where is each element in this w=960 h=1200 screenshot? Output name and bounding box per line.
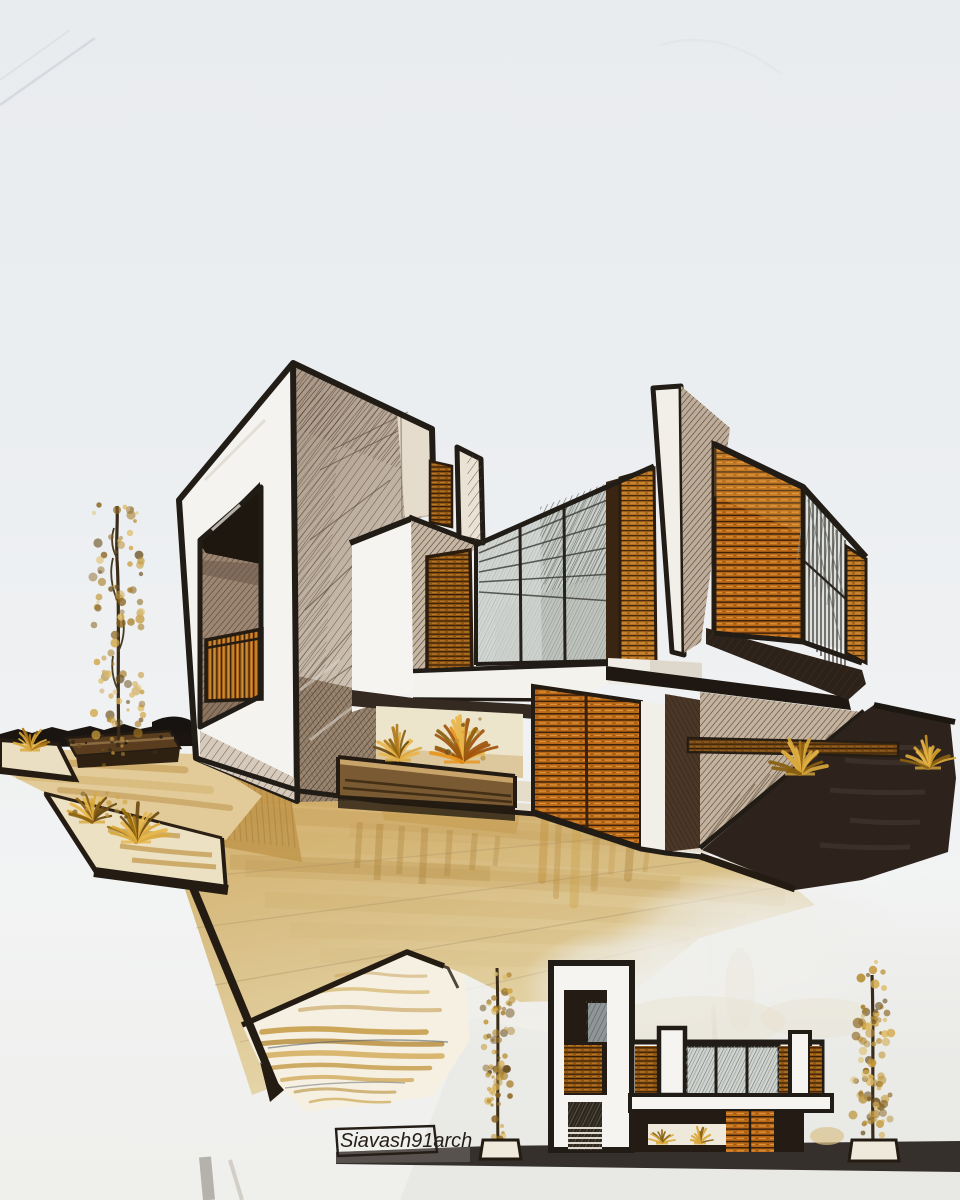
svg-text:Siavash91arch: Siavash91arch: [340, 1130, 472, 1152]
